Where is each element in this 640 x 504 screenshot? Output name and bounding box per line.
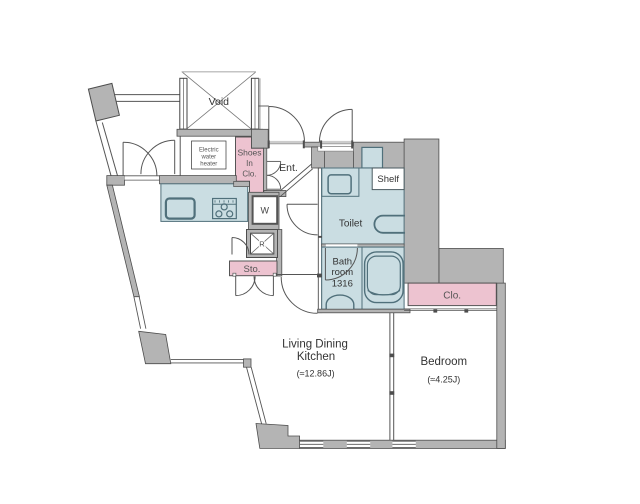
svg-text:In: In	[246, 159, 253, 168]
svg-text:Clo.: Clo.	[443, 290, 461, 301]
svg-text:Sto.: Sto.	[244, 264, 261, 275]
svg-text:Clo.: Clo.	[242, 170, 256, 179]
svg-text:(≈12.86J): (≈12.86J)	[297, 369, 335, 379]
svg-text:heater: heater	[200, 162, 217, 168]
svg-text:Void: Void	[209, 96, 230, 108]
svg-text:(≈4.25J): (≈4.25J)	[427, 375, 460, 385]
svg-text:Shoes: Shoes	[237, 147, 261, 157]
svg-text:Living Dining: Living Dining	[282, 338, 348, 350]
svg-text:Toilet: Toilet	[339, 219, 363, 230]
svg-text:Bath: Bath	[333, 257, 353, 268]
svg-text:Kitchen: Kitchen	[297, 351, 335, 363]
svg-text:Ent.: Ent.	[279, 162, 298, 174]
svg-text:W: W	[261, 206, 270, 216]
svg-text:water: water	[200, 155, 216, 161]
svg-text:R: R	[259, 239, 265, 248]
svg-text:Electric: Electric	[199, 148, 219, 154]
svg-text:Bedroom: Bedroom	[420, 356, 467, 368]
svg-text:1316: 1316	[332, 279, 353, 290]
svg-text:Shelf: Shelf	[377, 174, 399, 185]
